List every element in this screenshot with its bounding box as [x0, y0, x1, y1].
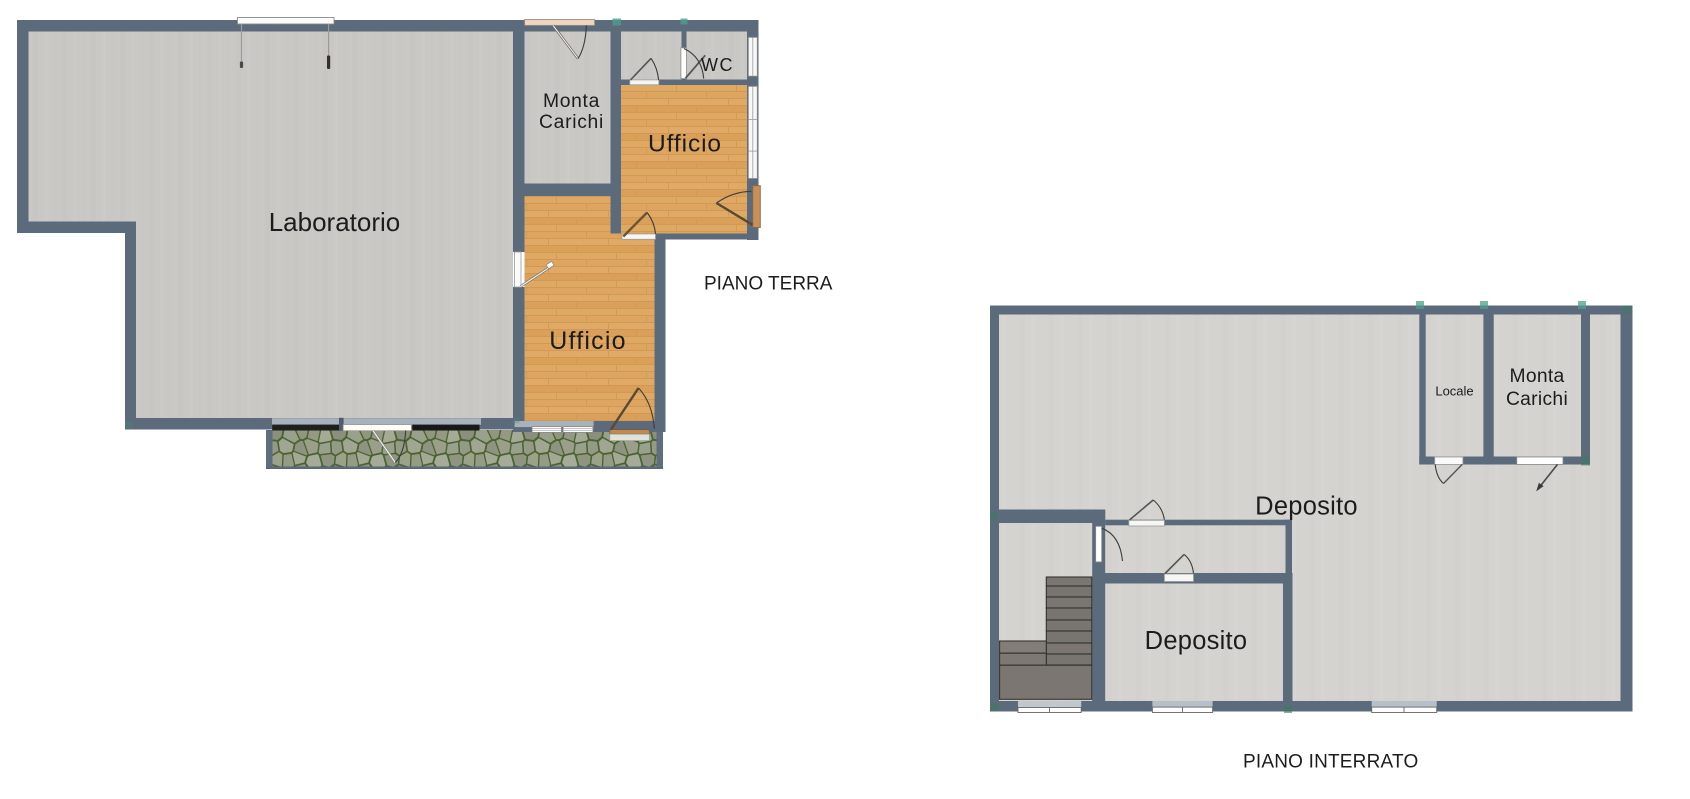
svg-text:Deposito: Deposito — [1145, 627, 1248, 655]
svg-text:Carichi: Carichi — [539, 112, 604, 133]
svg-text:Deposito: Deposito — [1255, 493, 1358, 521]
svg-text:PIANO INTERRATO: PIANO INTERRATO — [1243, 752, 1418, 773]
svg-text:Ufficio: Ufficio — [648, 131, 722, 158]
svg-text:Locale: Locale — [1435, 384, 1473, 399]
svg-text:PIANO TERRA: PIANO TERRA — [704, 274, 833, 295]
svg-text:Carichi: Carichi — [1506, 389, 1568, 410]
svg-text:Laboratorio: Laboratorio — [269, 207, 401, 237]
svg-text:Monta: Monta — [543, 91, 600, 112]
svg-text:Monta: Monta — [1509, 366, 1564, 387]
svg-text:Ufficio: Ufficio — [549, 327, 626, 355]
svg-text:WC: WC — [701, 55, 734, 75]
